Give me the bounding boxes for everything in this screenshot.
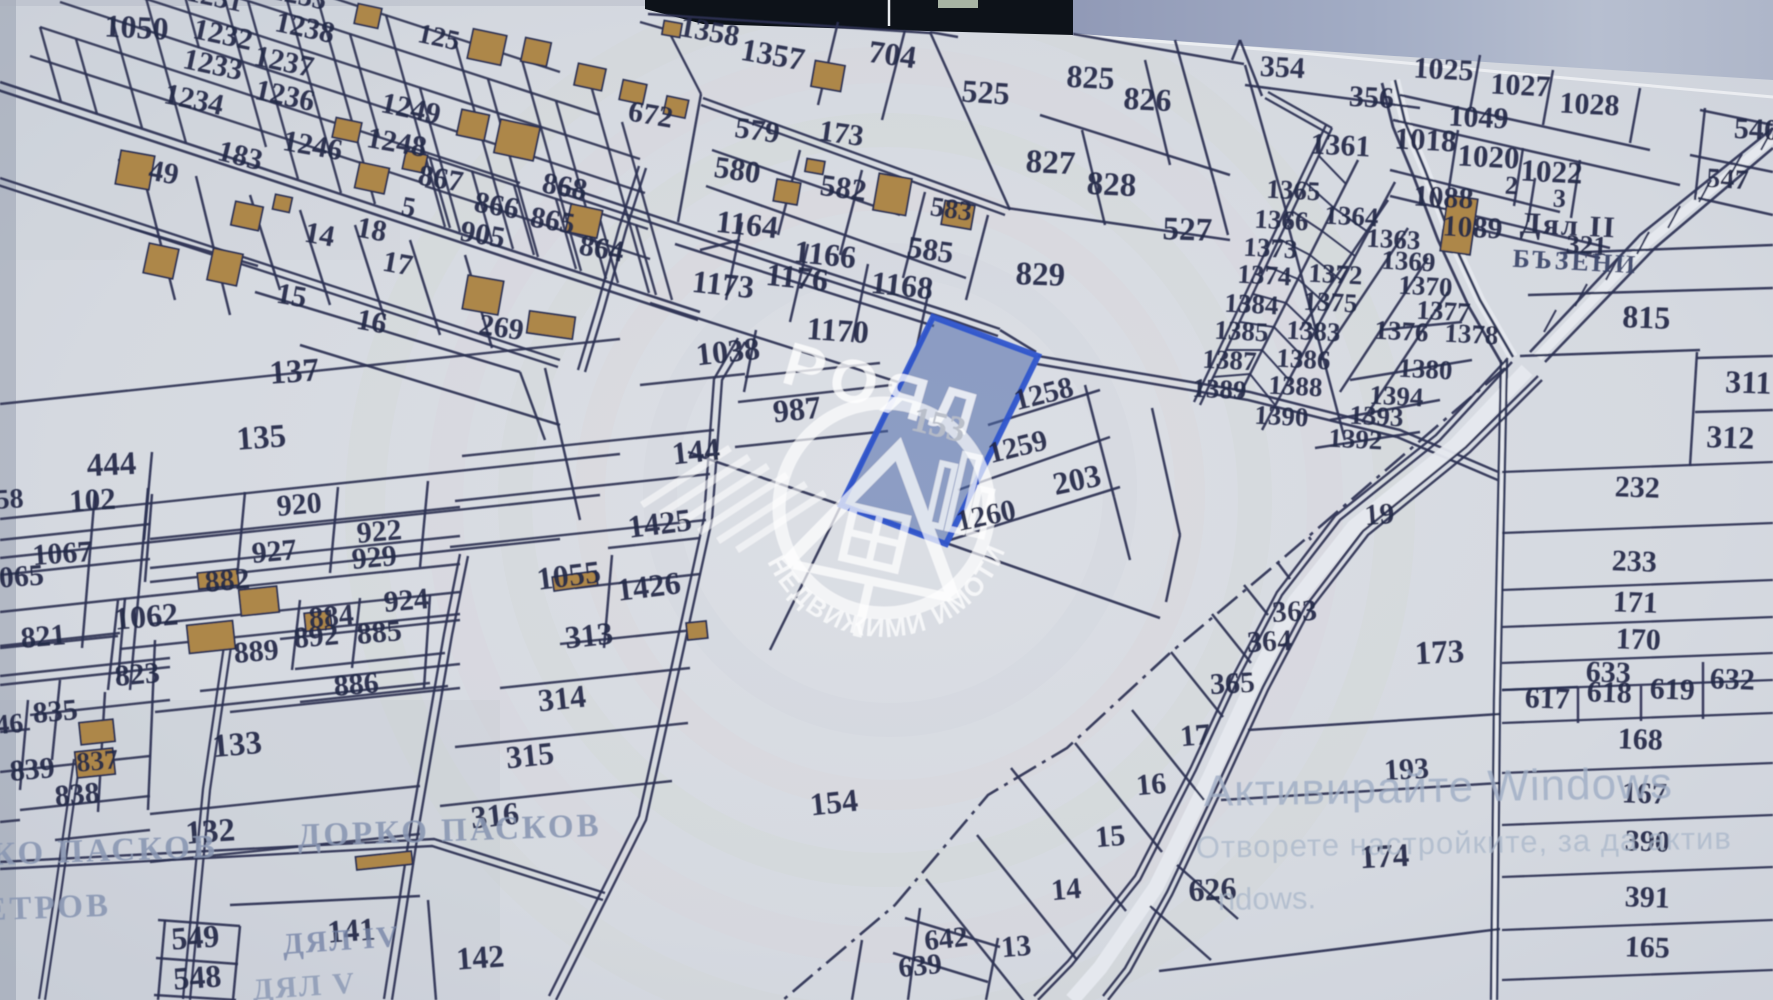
svg-text:924: 924 <box>382 582 430 619</box>
svg-text:835: 835 <box>31 693 79 730</box>
svg-text:1018: 1018 <box>1394 120 1458 158</box>
svg-text:987: 987 <box>771 389 823 430</box>
svg-text:170: 170 <box>1615 622 1661 657</box>
svg-text:618: 618 <box>1586 675 1632 710</box>
svg-text:1164: 1164 <box>714 203 780 245</box>
svg-text:1176: 1176 <box>764 256 830 298</box>
svg-text:133: 133 <box>211 725 263 765</box>
svg-text:1028: 1028 <box>1559 86 1621 122</box>
svg-text:14: 14 <box>302 216 337 254</box>
svg-text:885: 885 <box>355 614 403 651</box>
svg-text:Дял II: Дял II <box>1519 207 1617 245</box>
svg-text:815: 815 <box>1622 298 1671 336</box>
svg-text:ndows.: ndows. <box>1218 880 1317 917</box>
svg-text:1062: 1062 <box>113 595 180 636</box>
svg-text:135: 135 <box>235 418 287 457</box>
svg-text:19: 19 <box>1363 497 1395 532</box>
svg-text:154: 154 <box>808 782 860 823</box>
svg-text:1383: 1383 <box>1286 315 1341 348</box>
svg-text:15: 15 <box>1094 819 1127 854</box>
svg-text:13: 13 <box>1000 929 1033 964</box>
svg-text:46: 46 <box>0 708 25 741</box>
svg-text:ЕТРОВ: ЕТРОВ <box>0 888 112 928</box>
svg-text:173: 173 <box>817 114 866 153</box>
svg-text:927: 927 <box>250 533 298 570</box>
svg-text:547: 547 <box>1706 163 1750 196</box>
svg-text:1020: 1020 <box>1457 137 1521 175</box>
svg-text:583: 583 <box>928 191 974 228</box>
svg-text:525: 525 <box>961 72 1011 111</box>
svg-text:839: 839 <box>8 751 56 788</box>
svg-text:540: 540 <box>1733 112 1773 147</box>
svg-text:826: 826 <box>1123 80 1173 118</box>
svg-text:828: 828 <box>1086 166 1137 205</box>
svg-text:892: 892 <box>292 618 340 655</box>
svg-text:1089: 1089 <box>1442 209 1504 245</box>
svg-text:1366: 1366 <box>1254 204 1309 237</box>
svg-text:823: 823 <box>113 656 161 693</box>
svg-text:821: 821 <box>19 618 67 655</box>
svg-text:1365: 1365 <box>1266 174 1321 207</box>
svg-text:617: 617 <box>1524 681 1570 716</box>
svg-text:632: 632 <box>1709 662 1755 697</box>
svg-text:365: 365 <box>1209 666 1256 701</box>
svg-text:1389: 1389 <box>1192 373 1247 406</box>
svg-text:065: 065 <box>0 558 45 594</box>
svg-text:391: 391 <box>1624 880 1670 915</box>
svg-text:165: 165 <box>1624 930 1670 965</box>
svg-text:889: 889 <box>232 633 280 670</box>
svg-text:1392: 1392 <box>1328 423 1383 456</box>
svg-text:639: 639 <box>897 948 944 984</box>
svg-text:1027: 1027 <box>1490 67 1552 103</box>
svg-text:2: 2 <box>1504 171 1518 201</box>
svg-text:173: 173 <box>1414 634 1465 673</box>
svg-text:1374: 1374 <box>1237 259 1292 292</box>
svg-text:829: 829 <box>1015 256 1066 294</box>
svg-text:1388: 1388 <box>1268 370 1323 403</box>
svg-text:144: 144 <box>670 431 722 472</box>
svg-text:585: 585 <box>905 229 956 270</box>
svg-text:168: 168 <box>1617 722 1663 757</box>
svg-text:1385: 1385 <box>1214 315 1269 348</box>
svg-text:838: 838 <box>53 776 101 813</box>
svg-text:14: 14 <box>1050 872 1083 907</box>
svg-text:527: 527 <box>1162 211 1213 249</box>
svg-text:142: 142 <box>455 937 505 976</box>
svg-text:619: 619 <box>1649 672 1695 707</box>
svg-text:1375: 1375 <box>1303 286 1358 319</box>
svg-text:1025: 1025 <box>1413 51 1475 87</box>
svg-text:1022: 1022 <box>1520 152 1584 190</box>
svg-text:1173: 1173 <box>690 263 756 305</box>
svg-text:580: 580 <box>712 149 763 190</box>
svg-text:269: 269 <box>477 308 526 347</box>
svg-text:232: 232 <box>1614 470 1660 505</box>
svg-text:356: 356 <box>1348 80 1395 115</box>
svg-text:58: 58 <box>0 483 24 515</box>
svg-text:364: 364 <box>1246 624 1293 659</box>
svg-text:312: 312 <box>1706 418 1755 456</box>
svg-text:16: 16 <box>354 303 389 341</box>
svg-text:315: 315 <box>504 735 556 776</box>
svg-text:827: 827 <box>1025 144 1076 183</box>
svg-text:102: 102 <box>68 481 116 518</box>
svg-text:548: 548 <box>172 957 222 996</box>
svg-text:311: 311 <box>1725 363 1772 401</box>
svg-text:354: 354 <box>1259 50 1306 85</box>
svg-text:16: 16 <box>1135 767 1168 802</box>
svg-text:579: 579 <box>733 111 782 150</box>
svg-text:171: 171 <box>1612 585 1658 620</box>
svg-text:1168: 1168 <box>869 264 935 306</box>
svg-text:17: 17 <box>380 245 415 283</box>
svg-text:1387: 1387 <box>1202 344 1257 377</box>
svg-text:49: 49 <box>146 154 181 192</box>
svg-text:1170: 1170 <box>805 310 870 350</box>
svg-text:314: 314 <box>536 678 588 719</box>
svg-text:920: 920 <box>275 486 323 523</box>
svg-text:929: 929 <box>350 539 398 576</box>
svg-text:704: 704 <box>866 33 919 75</box>
svg-text:549: 549 <box>170 917 220 956</box>
svg-text:Активирайте Windows: Активирайте Windows <box>1203 759 1673 816</box>
svg-text:1380: 1380 <box>1398 353 1453 386</box>
svg-text:1361: 1361 <box>1310 127 1372 163</box>
svg-text:15: 15 <box>274 277 309 315</box>
svg-text:825: 825 <box>1066 58 1116 96</box>
svg-text:1376: 1376 <box>1374 315 1429 348</box>
svg-text:17: 17 <box>1179 718 1212 753</box>
svg-text:1050: 1050 <box>104 7 170 46</box>
svg-text:1390: 1390 <box>1254 400 1309 433</box>
svg-text:886: 886 <box>332 666 380 703</box>
svg-text:582: 582 <box>818 167 869 208</box>
svg-text:837: 837 <box>75 744 120 779</box>
svg-text:18: 18 <box>354 211 389 249</box>
svg-text:1378: 1378 <box>1444 318 1499 351</box>
svg-text:313: 313 <box>563 615 615 656</box>
svg-text:882: 882 <box>203 562 251 599</box>
svg-text:444: 444 <box>86 446 137 485</box>
svg-text:1038: 1038 <box>694 330 761 372</box>
svg-text:233: 233 <box>1611 544 1657 579</box>
svg-text:137: 137 <box>268 352 320 391</box>
